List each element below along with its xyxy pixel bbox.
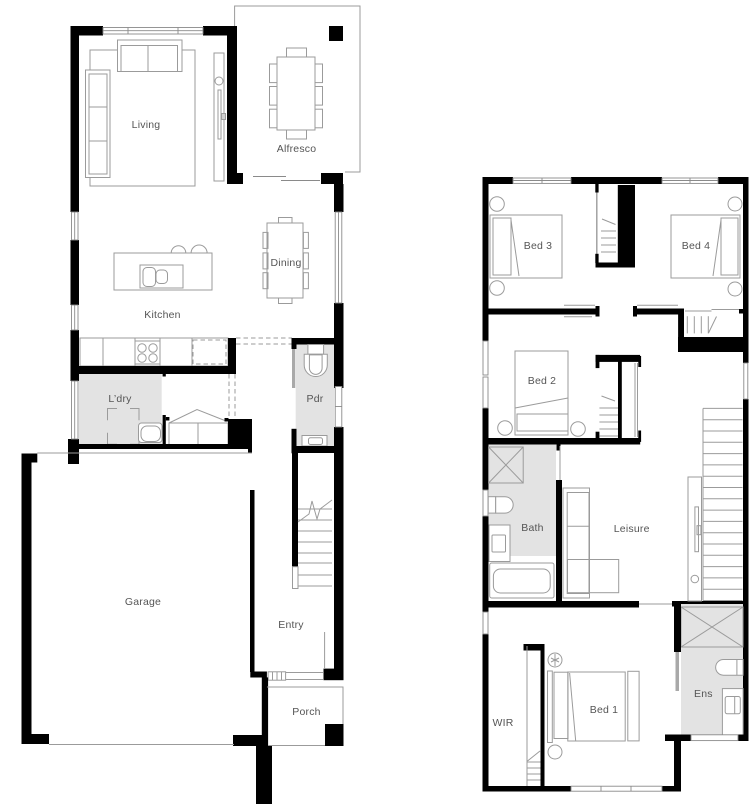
svg-text:Dining: Dining bbox=[271, 257, 302, 269]
svg-text:Garage: Garage bbox=[125, 596, 161, 608]
svg-text:Porch: Porch bbox=[292, 706, 320, 718]
svg-text:Bed 3: Bed 3 bbox=[524, 240, 552, 252]
svg-text:Bed 2: Bed 2 bbox=[528, 375, 556, 387]
svg-text:Ens: Ens bbox=[694, 688, 713, 700]
svg-text:Bath: Bath bbox=[521, 522, 543, 534]
svg-text:WIR: WIR bbox=[492, 717, 513, 729]
svg-text:Bed 1: Bed 1 bbox=[590, 704, 618, 716]
svg-text:Alfresco: Alfresco bbox=[277, 143, 317, 155]
svg-text:L’dry: L’dry bbox=[108, 393, 132, 405]
svg-text:Bed 4: Bed 4 bbox=[682, 240, 710, 252]
svg-text:Living: Living bbox=[132, 119, 161, 131]
svg-text:Leisure: Leisure bbox=[614, 523, 650, 535]
svg-text:Pdr: Pdr bbox=[307, 393, 324, 405]
svg-text:Kitchen: Kitchen bbox=[144, 309, 180, 321]
svg-text:Entry: Entry bbox=[278, 619, 304, 631]
